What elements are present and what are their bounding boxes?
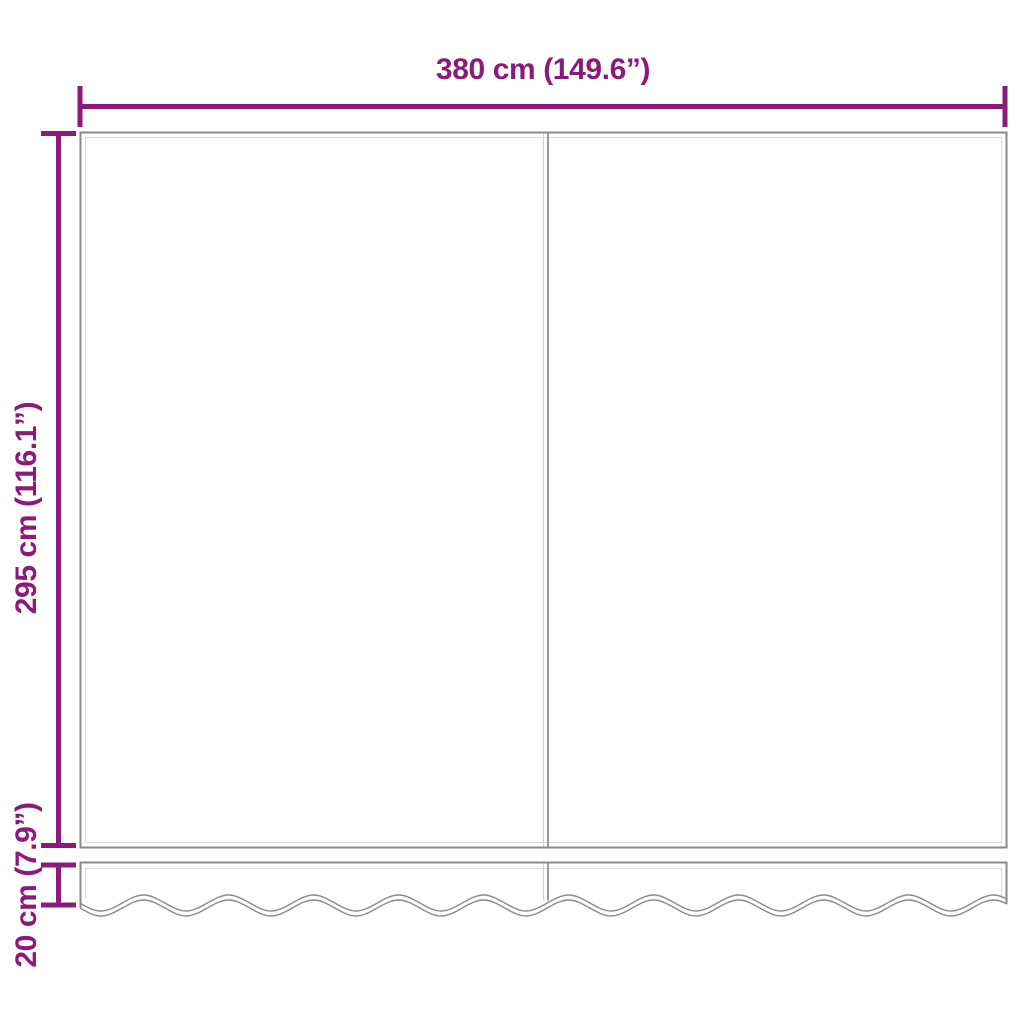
width-dimension-label: 380 cm (149.6”) xyxy=(436,53,650,86)
valance-strip xyxy=(80,863,1008,917)
width-dimension: 380 cm (149.6”) xyxy=(80,53,1005,127)
height-dimension: 295 cm (116.1”) xyxy=(10,132,76,847)
valance-height-dimension: 20 cm (7.9”) xyxy=(10,802,76,967)
diagram-canvas: 380 cm (149.6”) 295 cm (116.1”) 20 cm (7… xyxy=(0,0,1024,1024)
valance-wave-edge-hem xyxy=(80,900,1007,916)
awning-fabric-panel xyxy=(81,133,1007,848)
valance-dimension-label: 20 cm (7.9”) xyxy=(10,802,43,967)
height-dimension-label: 295 cm (116.1”) xyxy=(10,402,43,614)
dimension-diagram: 380 cm (149.6”) 295 cm (116.1”) 20 cm (7… xyxy=(0,0,1024,1024)
